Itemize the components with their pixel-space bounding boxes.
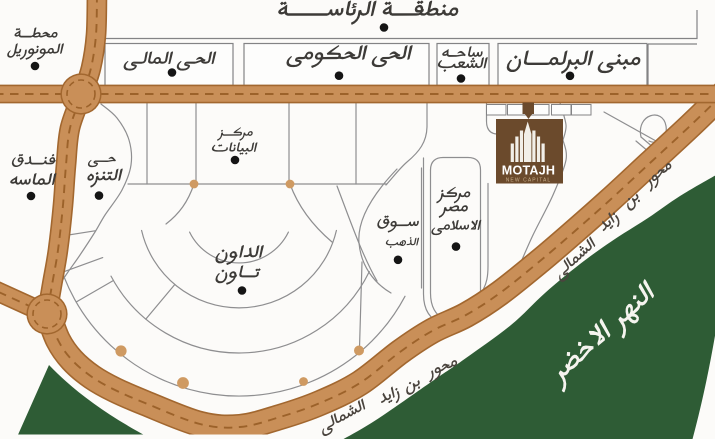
svg-text:MOTAJH: MOTAJH bbox=[502, 164, 555, 178]
svg-text:NEW CAPITAL: NEW CAPITAL bbox=[506, 178, 552, 184]
